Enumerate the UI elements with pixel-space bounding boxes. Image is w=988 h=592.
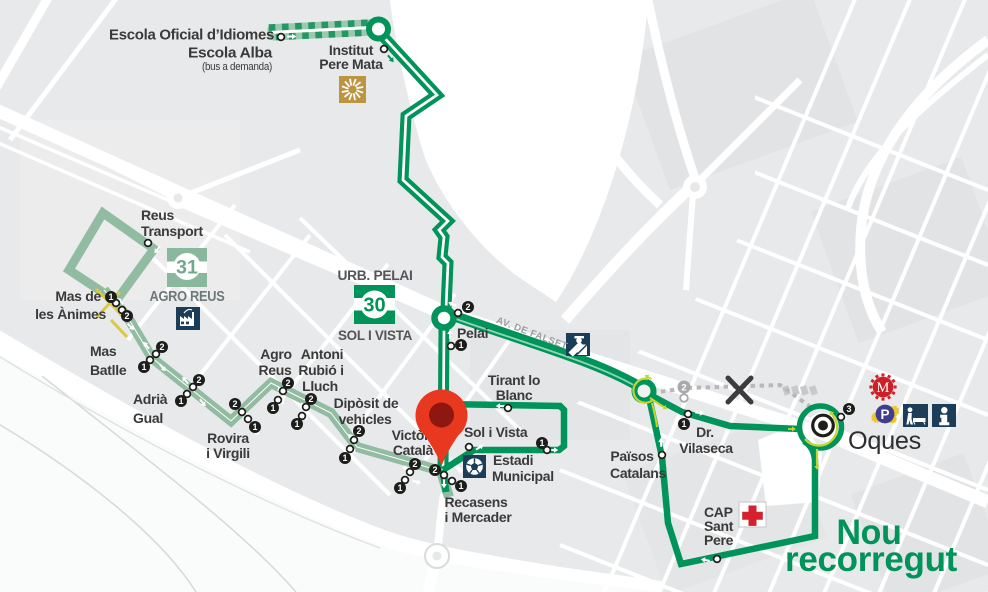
svg-text:2: 2 bbox=[681, 382, 686, 393]
svg-text:Escola Oficial d’Idiomes: Escola Oficial d’Idiomes bbox=[109, 28, 274, 44]
svg-text:Reus: Reus bbox=[258, 362, 292, 378]
svg-text:Sol i Vista: Sol i Vista bbox=[464, 424, 528, 440]
svg-text:i Mercader: i Mercader bbox=[444, 509, 512, 525]
svg-text:(bus a demanda): (bus a demanda) bbox=[202, 61, 272, 73]
svg-text:Tirant lo: Tirant lo bbox=[488, 372, 540, 388]
svg-text:M: M bbox=[877, 380, 890, 396]
svg-text:Oques: Oques bbox=[848, 427, 921, 455]
svg-text:Blanc: Blanc bbox=[496, 387, 533, 403]
svg-text:Mas de: Mas de bbox=[55, 288, 101, 304]
svg-text:recorregut: recorregut bbox=[785, 540, 958, 579]
svg-text:Agro: Agro bbox=[260, 346, 291, 362]
svg-text:Gual: Gual bbox=[133, 410, 163, 426]
svg-text:Dipòsit de: Dipòsit de bbox=[334, 395, 399, 411]
svg-text:Català: Català bbox=[393, 442, 434, 458]
svg-text:Escola Alba: Escola Alba bbox=[188, 46, 273, 62]
svg-text:Dr.: Dr. bbox=[696, 424, 714, 440]
svg-text:Rubió i: Rubió i bbox=[298, 362, 343, 378]
svg-text:Recasens: Recasens bbox=[445, 494, 508, 510]
svg-text:Mas: Mas bbox=[90, 343, 117, 359]
svg-text:30: 30 bbox=[363, 295, 385, 317]
svg-text:Batlle: Batlle bbox=[90, 362, 127, 378]
svg-text:Pelai: Pelai bbox=[457, 325, 488, 341]
svg-text:P: P bbox=[880, 407, 889, 422]
svg-text:Catalans: Catalans bbox=[610, 465, 666, 481]
svg-text:Països: Països bbox=[610, 448, 654, 464]
svg-text:Vilaseca: Vilaseca bbox=[679, 440, 733, 456]
svg-text:Reus: Reus bbox=[141, 207, 175, 223]
svg-text:Antoni: Antoni bbox=[301, 346, 344, 362]
svg-text:Estadi: Estadi bbox=[493, 452, 533, 468]
svg-text:vehicles: vehicles bbox=[339, 411, 392, 427]
svg-text:SOL I VISTA: SOL I VISTA bbox=[338, 328, 413, 343]
svg-text:Rovira: Rovira bbox=[207, 430, 249, 446]
svg-text:31: 31 bbox=[176, 257, 198, 279]
svg-text:Transport: Transport bbox=[141, 223, 204, 239]
svg-text:i Virgili: i Virgili bbox=[206, 445, 250, 461]
svg-text:Adrià: Adrià bbox=[133, 391, 168, 407]
svg-text:URB. PELAI: URB. PELAI bbox=[338, 268, 413, 283]
svg-text:Municipal: Municipal bbox=[492, 468, 554, 484]
svg-text:Pere: Pere bbox=[704, 532, 734, 548]
svg-text:Lluch: Lluch bbox=[302, 378, 338, 394]
svg-text:AGRO REUS: AGRO REUS bbox=[150, 289, 226, 305]
svg-text:Pere Mata: Pere Mata bbox=[319, 56, 383, 72]
svg-text:les Ànimes: les Ànimes bbox=[35, 306, 106, 322]
